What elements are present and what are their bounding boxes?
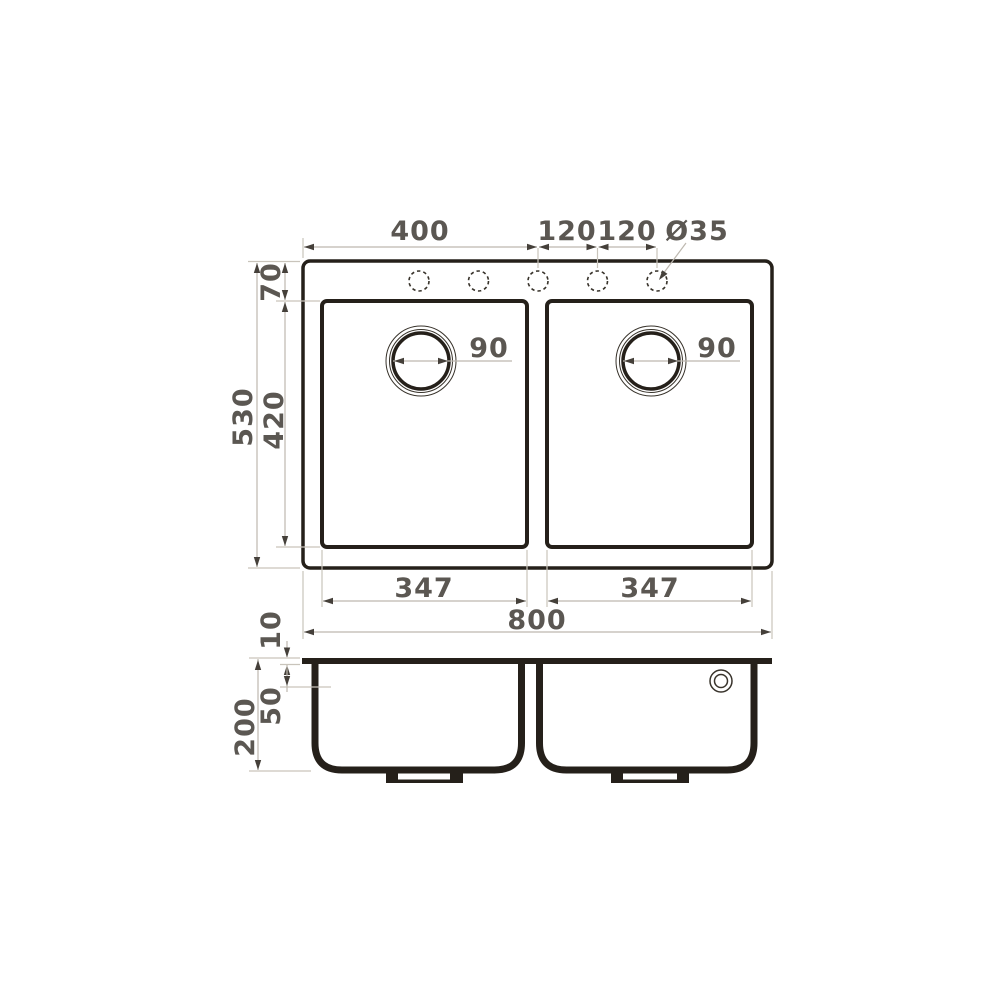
dim-347-right-label: 347 xyxy=(620,573,679,604)
drawing-canvas: 90 90 40 xyxy=(0,0,1000,1000)
section-view xyxy=(302,658,772,783)
dim-347-left-label: 347 xyxy=(394,573,453,604)
dim-800: 800 xyxy=(304,605,771,636)
dim-faucet-diameter-label: Ø35 xyxy=(665,216,729,247)
dim-400-label: 400 xyxy=(390,216,449,247)
dim-530-label: 530 xyxy=(228,387,259,446)
drain-fitting-right-slot xyxy=(623,774,677,780)
top-view: 90 90 xyxy=(303,261,772,568)
dim-200-label: 200 xyxy=(230,697,261,756)
dim-420: 420 xyxy=(259,302,290,546)
section-bowl-right xyxy=(540,661,755,770)
sink-outer-outline xyxy=(303,261,772,568)
section-bowl-left xyxy=(315,661,522,770)
dim-120-second-label: 120 xyxy=(597,216,656,247)
dim-70-label: 70 xyxy=(256,262,287,302)
overflow-inner-ring xyxy=(715,675,728,688)
dim-10-label: 10 xyxy=(256,610,287,650)
overflow-outer-ring xyxy=(710,670,732,692)
drain-left-diameter-label: 90 xyxy=(469,333,509,364)
dim-420-label: 420 xyxy=(259,390,290,449)
dim-70: 70 xyxy=(256,262,288,302)
dim-120-second: 120 xyxy=(597,216,656,250)
dim-120-first: 120 xyxy=(537,216,596,250)
sink-dimension-drawing: 90 90 40 xyxy=(0,0,1000,1000)
drain-fitting-left xyxy=(386,769,463,783)
dim-800-label: 800 xyxy=(507,605,566,636)
dim-200: 200 xyxy=(230,659,261,770)
dim-10: 10 xyxy=(256,610,290,675)
dim-530: 530 xyxy=(228,263,260,567)
drain-fitting-left-slot xyxy=(398,774,450,780)
dim-347-left: 347 xyxy=(323,573,526,604)
dim-400: 400 xyxy=(304,216,537,250)
drain-right-diameter-label: 90 xyxy=(697,333,737,364)
dim-347-right: 347 xyxy=(548,573,751,604)
overflow-hole xyxy=(710,670,732,692)
dim-120-first-label: 120 xyxy=(537,216,596,247)
drain-fitting-right xyxy=(611,769,689,783)
